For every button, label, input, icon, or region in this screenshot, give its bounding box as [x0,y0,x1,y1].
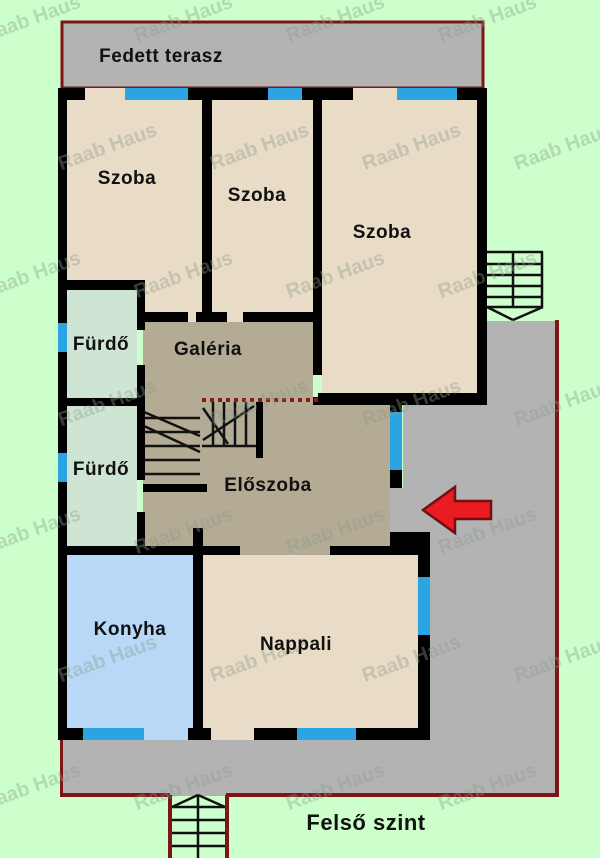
window-hall-east [390,412,402,470]
wall-room1-room2 [202,100,212,312]
floor-plan-drawing [0,0,600,858]
wall-room2-room3 [313,88,322,375]
window-kitchen-south [83,728,144,740]
window-bath1-west [58,323,67,352]
bathroom-lower-floor [67,405,137,546]
entrance-door-opening [390,488,403,532]
window-room2-north [268,88,302,100]
window-room1-north [125,88,188,100]
window-bath2-west [58,453,67,482]
terrace-border-bottom-right [226,793,559,797]
window-room3-north [397,88,457,100]
terrace-border-left [60,740,63,797]
room-top-right-floor [322,88,477,405]
bathroom-upper-floor [67,290,137,398]
terrace-border-bottom-left [61,793,170,797]
window-living-south [297,728,356,740]
living-room-floor [203,555,430,740]
window-living-east [418,577,430,635]
terrace-border-right [555,320,559,797]
wall-room3-bottom [318,393,485,405]
floor-plan-page: Raab HausRaab HausRaab HausRaab HausRaab… [0,0,600,858]
covered-terrace-area [62,22,483,88]
room-top-middle-floor [211,88,313,322]
kitchen-floor [67,555,193,740]
wall-kitchen-living [193,555,203,728]
